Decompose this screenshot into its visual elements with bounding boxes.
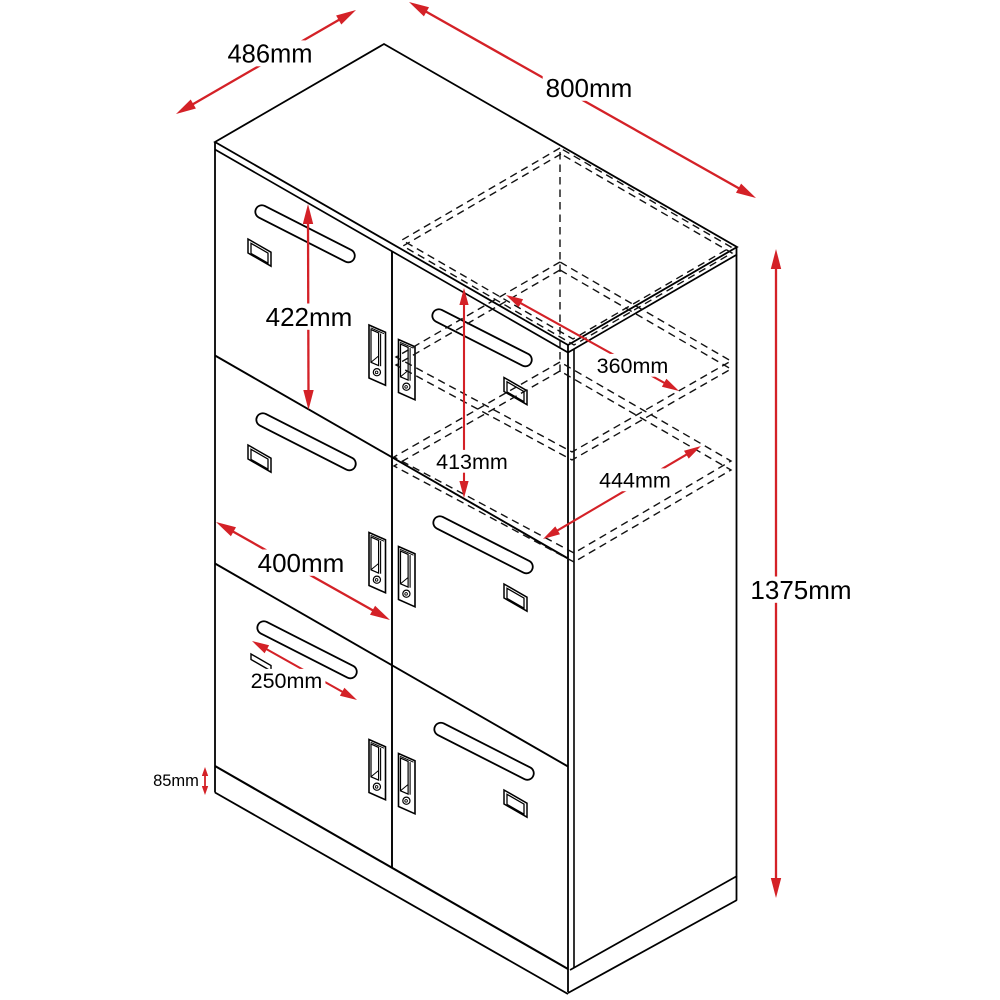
svg-text:444mm: 444mm: [599, 469, 671, 493]
svg-text:250mm: 250mm: [251, 669, 323, 693]
svg-text:85mm: 85mm: [153, 772, 199, 790]
svg-text:422mm: 422mm: [266, 302, 353, 332]
svg-text:800mm: 800mm: [546, 73, 633, 103]
svg-text:360mm: 360mm: [597, 354, 669, 378]
svg-text:1375mm: 1375mm: [750, 575, 851, 605]
svg-text:413mm: 413mm: [436, 450, 508, 474]
svg-text:400mm: 400mm: [258, 548, 345, 578]
svg-text:486mm: 486mm: [227, 41, 312, 69]
